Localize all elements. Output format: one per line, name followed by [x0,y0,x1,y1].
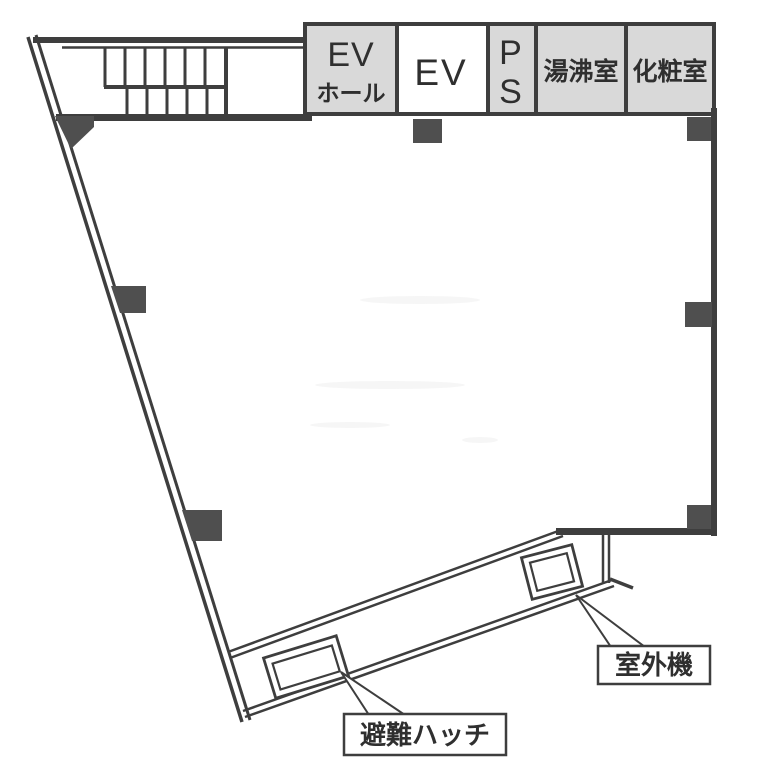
scan-artifact [310,296,498,443]
room-restroom-label: 化粧室 [632,57,707,86]
floor-plan-canvas: EV ホール EV P S 湯沸室 化粧室 [0,0,768,765]
bottom-diagonal-wall [228,530,563,658]
outdoor-unit-callout-label: 室外機 [615,650,693,680]
stair-treads-upper [105,48,205,87]
room-ev-hall-label-line1: EV [327,36,374,74]
column-below-elevator [413,119,442,143]
outdoor-unit [521,545,582,600]
room-ev-hall-label-line2: ホール [317,80,386,106]
column-left-lower [182,510,222,541]
column-left-middle [111,286,146,313]
room-elevator-label: EV [414,52,467,93]
column-top-right [687,117,711,141]
evacuation-hatch-leader-line [341,672,405,715]
staircase [56,47,312,118]
columns [55,116,712,541]
stair-treads-lower [127,87,207,115]
outdoor-unit-leader-line [576,595,645,647]
top-wall [33,40,310,48]
room-pipe-space-label-line2: S [499,73,523,111]
room-hot-water-label: 湯沸室 [543,57,618,86]
evacuation-hatch [264,636,349,698]
column-right-lower [687,505,711,529]
left-wall [28,35,250,722]
room-pipe-space-label-line1: P [499,34,523,72]
bottom-right-wall [556,528,717,535]
evacuation-hatch-callout-label: 避難ハッチ [360,720,490,750]
balcony-end-partition [603,533,609,583]
column-right-middle [685,302,712,327]
floor-plan-page: EV ホール EV P S 湯沸室 化粧室 [0,0,768,765]
